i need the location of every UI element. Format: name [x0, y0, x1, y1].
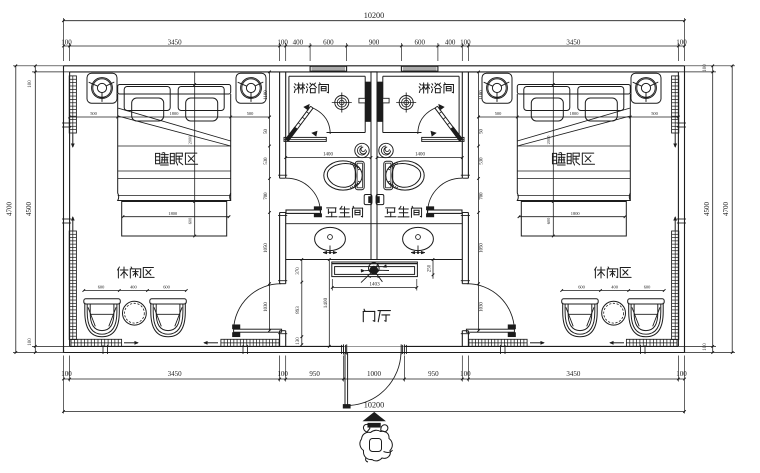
svg-text:4500: 4500 [703, 202, 711, 217]
svg-text:500: 500 [651, 111, 658, 116]
svg-text:370: 370 [296, 267, 301, 275]
svg-text:1403: 1403 [369, 282, 380, 288]
svg-text:500: 500 [90, 111, 97, 116]
svg-text:400: 400 [293, 38, 304, 46]
svg-text:3450: 3450 [566, 370, 581, 378]
svg-text:1030: 1030 [480, 302, 485, 312]
svg-text:100: 100 [277, 370, 288, 378]
svg-text:100: 100 [460, 370, 471, 378]
svg-text:1030: 1030 [264, 302, 269, 312]
svg-text:100: 100 [28, 80, 33, 88]
svg-text:100: 100 [676, 38, 687, 46]
svg-text:1800: 1800 [570, 111, 580, 116]
svg-text:10200: 10200 [364, 401, 384, 410]
svg-text:600: 600 [578, 284, 585, 289]
svg-text:100: 100 [676, 370, 687, 378]
svg-text:3450: 3450 [566, 38, 581, 46]
svg-text:10200: 10200 [364, 11, 384, 20]
svg-text:1800: 1800 [571, 211, 581, 216]
svg-text:4700: 4700 [6, 202, 14, 217]
svg-text:950: 950 [309, 370, 320, 378]
svg-text:130: 130 [296, 337, 301, 345]
svg-text:950: 950 [428, 370, 439, 378]
svg-text:100: 100 [277, 38, 288, 46]
svg-text:600: 600 [163, 284, 170, 289]
svg-text:1100: 1100 [264, 90, 269, 100]
svg-text:1800: 1800 [170, 111, 180, 116]
svg-text:600: 600 [188, 217, 193, 224]
svg-text:600: 600 [98, 284, 105, 289]
svg-text:1400: 1400 [415, 152, 425, 157]
svg-text:893: 893 [296, 306, 301, 314]
svg-text:100: 100 [28, 338, 33, 346]
svg-text:600: 600 [644, 284, 651, 289]
svg-text:1050: 1050 [264, 243, 269, 253]
svg-text:1400: 1400 [323, 297, 329, 308]
svg-text:500: 500 [495, 111, 502, 116]
svg-text:500: 500 [247, 111, 254, 116]
svg-text:400: 400 [445, 38, 456, 46]
svg-text:50: 50 [264, 129, 269, 134]
svg-text:100: 100 [703, 64, 708, 72]
svg-text:2000: 2000 [546, 135, 551, 145]
svg-text:100: 100 [61, 370, 72, 378]
svg-text:100: 100 [61, 38, 72, 46]
svg-text:1000: 1000 [367, 370, 382, 378]
svg-text:1400: 1400 [323, 152, 333, 157]
svg-text:700: 700 [480, 192, 485, 200]
svg-text:900: 900 [369, 38, 380, 46]
svg-text:4700: 4700 [722, 202, 730, 217]
svg-text:250: 250 [427, 264, 432, 272]
svg-text:1050: 1050 [480, 243, 485, 253]
svg-text:530: 530 [480, 157, 485, 165]
svg-text:400: 400 [611, 284, 618, 289]
svg-text:530: 530 [264, 157, 269, 165]
svg-text:600: 600 [546, 217, 551, 224]
svg-text:600: 600 [414, 38, 425, 46]
svg-text:700: 700 [264, 192, 269, 200]
svg-text:1100: 1100 [480, 90, 485, 100]
svg-text:100: 100 [703, 343, 708, 351]
svg-text:2000: 2000 [188, 135, 193, 145]
svg-text:3450: 3450 [168, 370, 183, 378]
svg-text:3450: 3450 [168, 38, 183, 46]
svg-text:50: 50 [480, 129, 485, 134]
svg-text:1800: 1800 [168, 211, 178, 216]
svg-text:4500: 4500 [25, 202, 33, 217]
svg-text:400: 400 [130, 284, 137, 289]
svg-text:100: 100 [460, 38, 471, 46]
svg-text:600: 600 [323, 38, 334, 46]
